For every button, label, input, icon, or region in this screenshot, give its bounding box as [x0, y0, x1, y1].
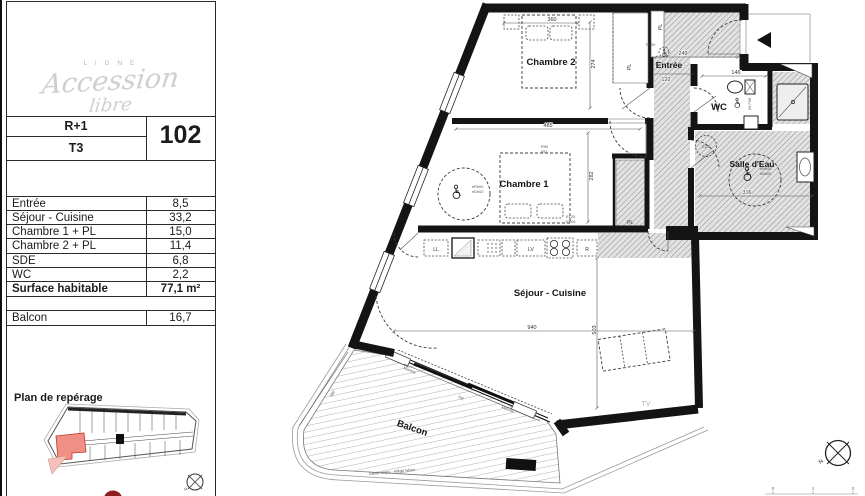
code-text: 05 P08 [747, 98, 752, 110]
drainer-dots [487, 243, 496, 252]
sofa [598, 329, 670, 371]
kitchen-counter: LL LV R [424, 238, 597, 258]
toilet [728, 81, 743, 93]
panel-border [6, 160, 216, 161]
panel-border [6, 325, 216, 326]
window [440, 72, 465, 113]
fridge-label: R [585, 247, 589, 253]
area-value: 11,4 [146, 240, 215, 253]
code-text: eDh02 [760, 171, 771, 176]
room-label-entree: Entrée [656, 60, 683, 70]
room-label-sejour: Séjour - Cuisine [514, 288, 586, 299]
area-value: 2,2 [146, 269, 215, 282]
unit-floor: R+1 [6, 120, 146, 133]
window [370, 251, 395, 292]
wc-basin [744, 116, 758, 129]
handicap-clearance-circle [438, 168, 490, 220]
area-label: Chambre 1 + PL [12, 226, 96, 239]
keyplan: N [44, 404, 203, 496]
dim-316: 316 [742, 190, 751, 196]
dim-940: 940 [527, 325, 536, 331]
dim-485: 485 [543, 123, 552, 129]
panel-border [6, 1, 216, 2]
area-value: 15,0 [146, 226, 215, 239]
unit-type: T3 [6, 142, 146, 155]
scale-tick-label: 2 [852, 486, 855, 491]
north-label: N [818, 459, 825, 466]
balcony-value: 16,7 [146, 312, 215, 325]
dim-503: 503 [592, 325, 598, 334]
area-label: WC [12, 269, 31, 282]
floorplan-page: Balcon Garde-corps - Allège béton Marche… [0, 0, 865, 496]
scale-bar: 0 1 2 [765, 486, 858, 494]
wheelchair-icon [453, 185, 460, 199]
code-text: eDh02 [472, 189, 483, 194]
area-value: 6,8 [146, 255, 215, 268]
balcony-label: Balcon [12, 312, 47, 325]
water-heater-label: ECS [702, 144, 710, 149]
window [404, 165, 429, 206]
compass-icon: N [818, 441, 851, 466]
area-label: SDE [12, 255, 36, 268]
scale-tick-label: 0 [772, 486, 775, 491]
page-edge [0, 0, 2, 496]
red-marker [104, 491, 123, 496]
wheelchair-icon [735, 98, 740, 107]
room-label-chambre1: Chambre 1 [499, 179, 549, 190]
room-label-wc: WC [711, 102, 727, 113]
area-label: Séjour - Cuisine [12, 212, 94, 225]
compass-small-icon: N [183, 474, 203, 492]
keyplan-title: Plan de repérage [14, 392, 103, 405]
dim-249: 249 [678, 51, 687, 57]
area-value: 8,5 [146, 198, 215, 211]
dim-282: 282 [589, 171, 595, 180]
panel-border [6, 196, 216, 197]
closet-label-chambre2: PL [627, 64, 633, 70]
north-label: N [183, 486, 189, 492]
dishwasher-label: LV [528, 247, 534, 253]
entrance-arrow-icon [757, 32, 771, 48]
panel-border [6, 136, 146, 137]
dim-274: 274 [591, 59, 597, 68]
room-label-chambre2: Chambre 2 [526, 57, 575, 68]
area-value: 33,2 [146, 212, 215, 225]
washer-label: LL [433, 247, 439, 253]
windows [370, 72, 465, 292]
panel-border [6, 253, 216, 254]
keyplan-highlight-balcony [48, 456, 67, 474]
dim-122: 122 [661, 77, 670, 83]
area-label: Entrée [12, 198, 46, 211]
closet-label-chambre1: PL [627, 220, 633, 226]
closet-label-entree: PL [658, 24, 664, 30]
unit-number: 102 [146, 123, 215, 148]
code-text: EH01 [566, 219, 576, 224]
tv-label: TV [642, 401, 651, 408]
panel-border [6, 296, 216, 297]
dim-360: 360 [547, 17, 556, 23]
area-label: Chambre 2 + PL [12, 240, 96, 253]
total-value: 77,1 m² [146, 283, 215, 296]
code-text: R+00 [646, 42, 656, 47]
code-text: 091 [541, 149, 548, 154]
total-label: Surface habitable [12, 283, 108, 296]
hob-burners [550, 240, 569, 255]
bed-chambre2 [504, 15, 594, 88]
scale-tick-label: 1 [812, 486, 815, 491]
balcony-pillar [506, 458, 537, 471]
panel-border [6, 310, 216, 311]
dim-146: 146 [731, 70, 740, 76]
